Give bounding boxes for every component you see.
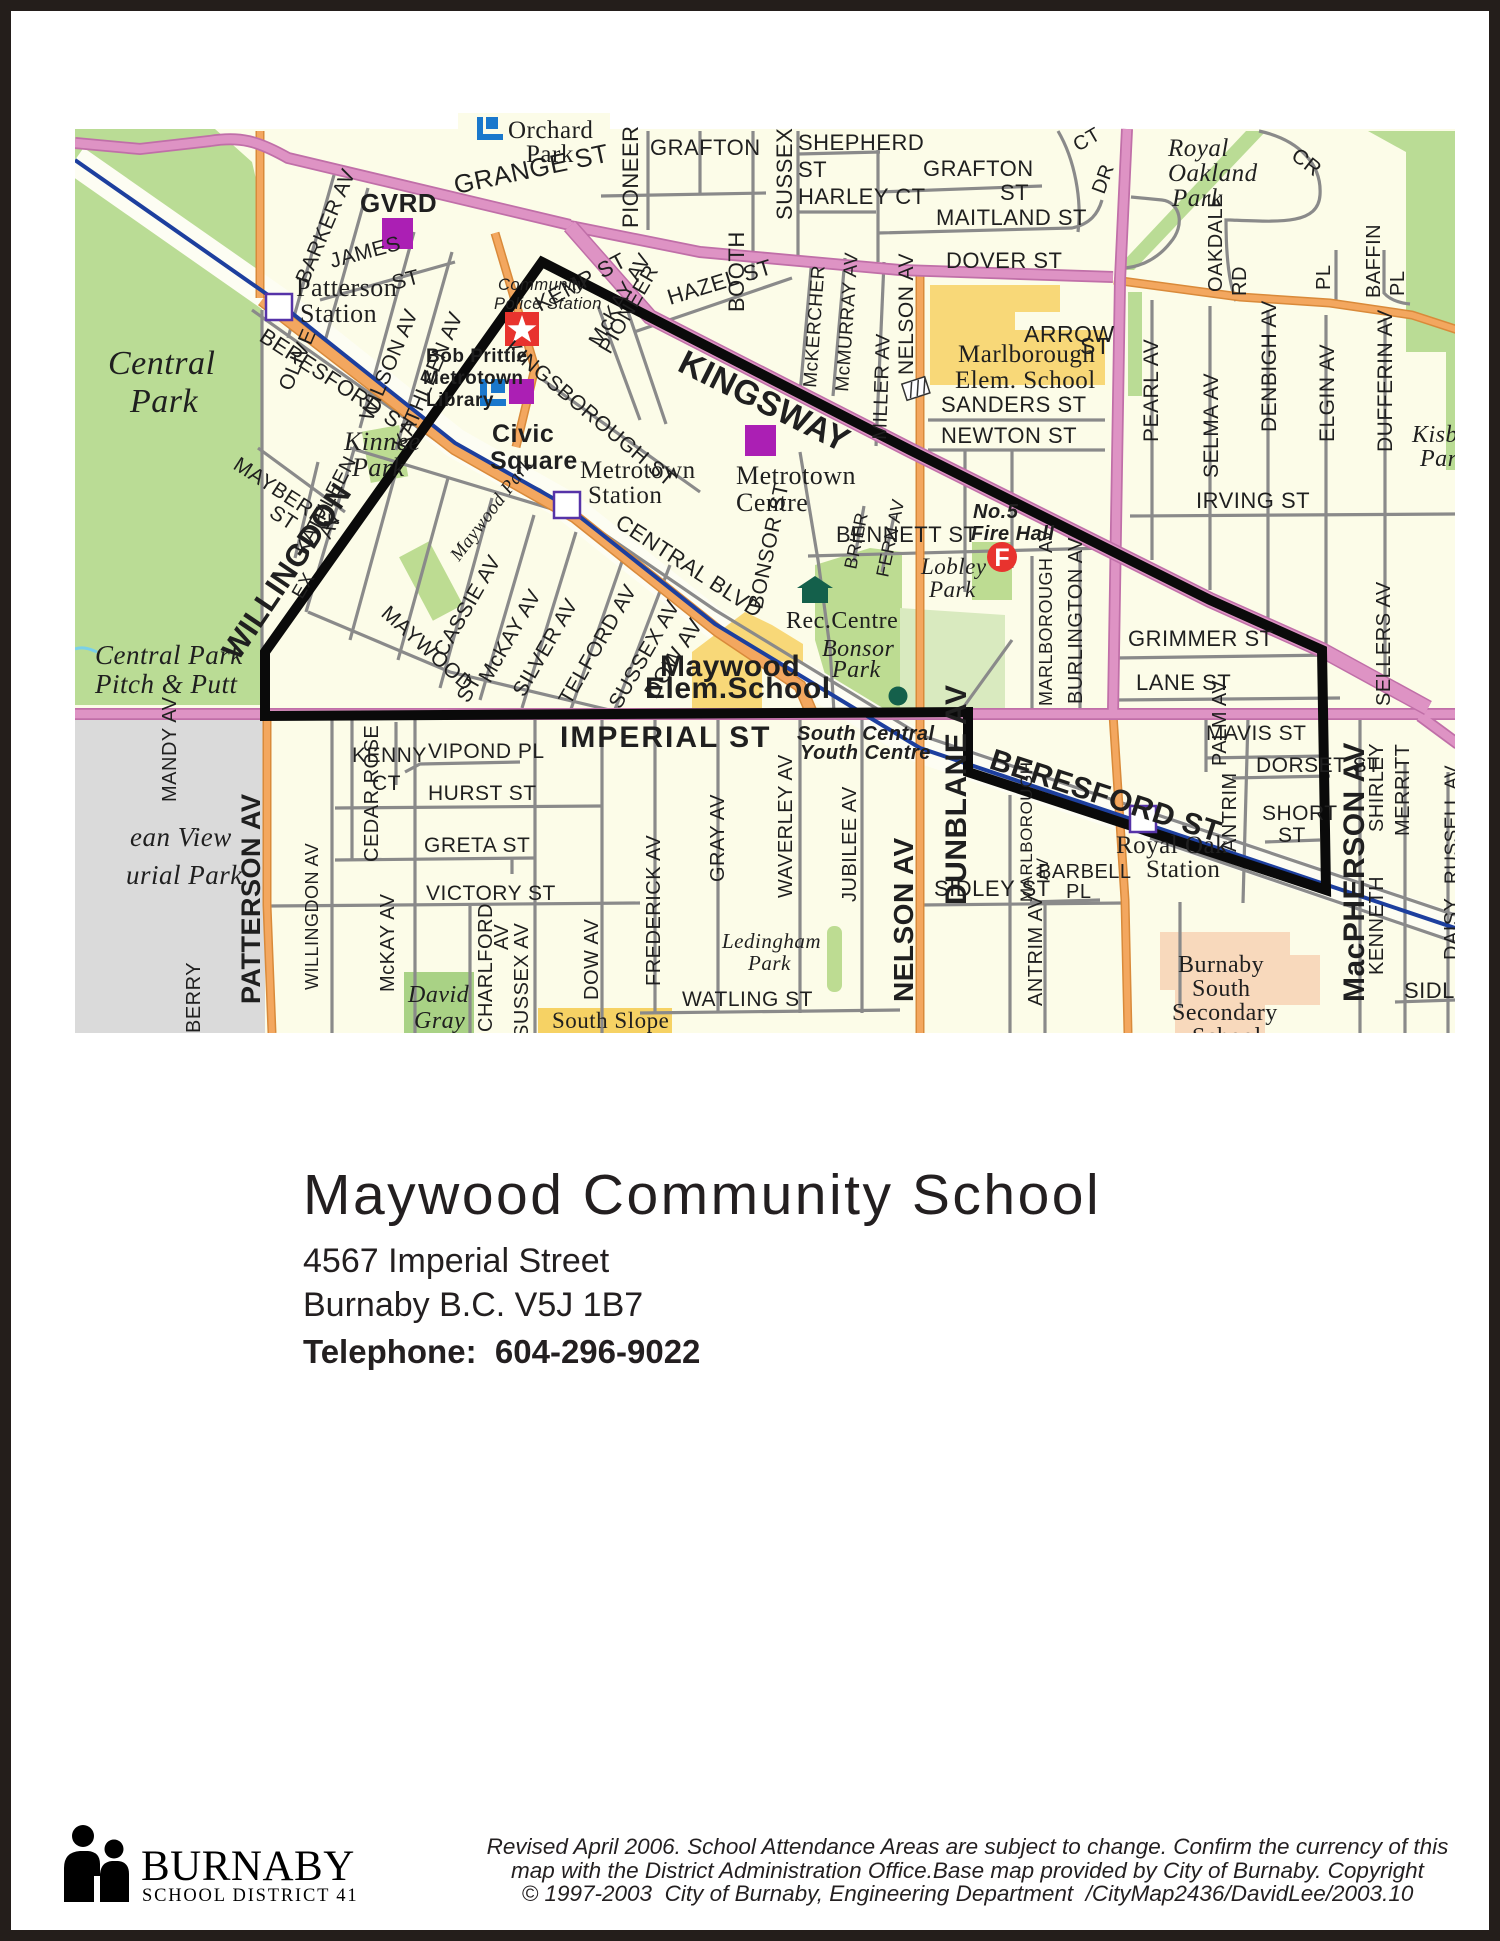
svg-text:Park: Park	[129, 383, 199, 420]
svg-text:ST: ST	[1000, 180, 1029, 205]
svg-text:AV: AV	[491, 924, 513, 950]
svg-text:MANDY AV: MANDY AV	[159, 696, 181, 802]
svg-text:PL: PL	[1387, 271, 1409, 296]
svg-text:SHEPHERD: SHEPHERD	[798, 130, 924, 155]
svg-text:Oakland: Oakland	[1168, 160, 1258, 187]
svg-text:Metrotown: Metrotown	[423, 368, 524, 389]
svg-text:PL: PL	[1066, 881, 1091, 903]
svg-text:AV: AV	[1033, 857, 1052, 880]
svg-text:ean View: ean View	[130, 822, 232, 852]
svg-text:Station: Station	[300, 299, 377, 328]
svg-text:SELMA AV: SELMA AV	[1200, 373, 1223, 478]
svg-text:Marlborough: Marlborough	[958, 341, 1095, 368]
svg-text:GRAY AV: GRAY AV	[707, 794, 729, 882]
svg-text:GVRD: GVRD	[360, 188, 437, 218]
svg-text:MERRITT: MERRITT	[1392, 744, 1414, 836]
svg-text:RD: RD	[1229, 266, 1251, 296]
svg-text:WAVERLEY AV: WAVERLEY AV	[775, 754, 797, 898]
svg-text:BENNETT ST: BENNETT ST	[836, 522, 978, 547]
svg-text:PATTERSON AV: PATTERSON AV	[236, 793, 266, 1004]
svg-text:Park: Park	[526, 141, 574, 168]
svg-text:CHARLFORD: CHARLFORD	[475, 903, 497, 1032]
svg-text:Station: Station	[1146, 856, 1220, 883]
svg-text:Park: Park	[351, 453, 405, 482]
svg-text:IMPERIAL ST: IMPERIAL ST	[560, 721, 771, 754]
svg-text:MARLBOROUGH AV: MARLBOROUGH AV	[1036, 529, 1056, 706]
svg-text:urial Park: urial Park	[126, 860, 243, 890]
svg-text:DUNBLANE AV: DUNBLANE AV	[940, 685, 973, 906]
svg-text:BURNABY: BURNABY	[141, 1843, 355, 1890]
svg-text:Park: Park	[1171, 185, 1223, 212]
svg-text:WATLING ST: WATLING ST	[682, 988, 813, 1011]
svg-text:GRETA ST: GRETA ST	[424, 834, 530, 857]
svg-text:Gray: Gray	[414, 1008, 465, 1033]
svg-text:DOVER ST: DOVER ST	[946, 248, 1062, 273]
svg-text:Library: Library	[426, 390, 494, 411]
svg-text:Station: Station	[588, 482, 662, 509]
svg-text:Metrotown: Metrotown	[736, 461, 856, 490]
svg-text:Rec.Centre: Rec.Centre	[786, 608, 898, 634]
svg-text:ST: ST	[1278, 824, 1306, 847]
svg-text:PIONEER: PIONEER	[618, 125, 643, 228]
svg-text:PL: PL	[1313, 265, 1335, 290]
svg-text:ANTRIM AV: ANTRIM AV	[1025, 895, 1047, 1006]
svg-text:FREDERICK AV: FREDERICK AV	[643, 835, 665, 986]
svg-text:Patterson: Patterson	[296, 273, 397, 302]
svg-text:DORSET ST: DORSET ST	[1256, 754, 1380, 777]
svg-text:Youth Centre: Youth Centre	[800, 742, 931, 764]
svg-text:David: David	[407, 982, 470, 1008]
svg-text:McKAY AV: McKAY AV	[377, 893, 399, 992]
svg-text:CEDAR ROSE: CEDAR ROSE	[361, 725, 383, 862]
svg-text:Park: Park	[747, 951, 791, 975]
svg-text:GRAFTON: GRAFTON	[923, 156, 1034, 181]
svg-text:Kisbe: Kisbe	[1411, 422, 1455, 448]
svg-text:NELSON AV: NELSON AV	[895, 253, 918, 375]
svg-text:Park: Park	[928, 577, 976, 602]
svg-text:Ledingham: Ledingham	[721, 929, 821, 953]
svg-text:DOW AV: DOW AV	[581, 918, 603, 1000]
svg-text:SANDERS ST: SANDERS ST	[941, 392, 1087, 417]
svg-text:ANTRIM: ANTRIM	[1219, 772, 1241, 852]
svg-text:VIPOND PL: VIPOND PL	[428, 740, 545, 763]
svg-text:Pitch & Putt: Pitch & Putt	[94, 669, 238, 699]
svg-text:Royal: Royal	[1167, 135, 1229, 162]
svg-text:Royal Oak: Royal Oak	[1116, 832, 1228, 859]
svg-text:Park: Park	[1419, 446, 1455, 472]
svg-text:SUSSEX AV: SUSSEX AV	[511, 923, 533, 1033]
svg-text:HARLEY CT: HARLEY CT	[798, 184, 926, 209]
svg-text:SHORT: SHORT	[1262, 802, 1338, 825]
svg-text:No.5: No.5	[973, 501, 1019, 523]
svg-text:BARBELL: BARBELL	[1038, 861, 1132, 883]
svg-text:Kinnee: Kinnee	[343, 427, 421, 456]
svg-text:Metrotown: Metrotown	[580, 457, 696, 484]
svg-text:KENNETH: KENNETH	[1366, 876, 1388, 975]
svg-text:Central Park: Central Park	[95, 640, 243, 670]
svg-text:South: South	[1192, 976, 1251, 1002]
svg-text:VICTORY ST: VICTORY ST	[426, 882, 556, 905]
svg-text:MILLER AV: MILLER AV	[869, 333, 895, 440]
svg-text:BERRY: BERRY	[183, 962, 205, 1033]
svg-text:GRIMMER ST: GRIMMER ST	[1128, 626, 1274, 651]
svg-text:ST: ST	[798, 157, 827, 182]
svg-text:Elem. School: Elem. School	[955, 367, 1096, 394]
svg-text:DAISY: DAISY	[1441, 897, 1455, 960]
svg-text:GRAFTON: GRAFTON	[650, 135, 761, 160]
svg-text:SELLERS AV: SELLERS AV	[1373, 581, 1395, 706]
svg-text:MAITLAND ST: MAITLAND ST	[936, 205, 1087, 230]
svg-text:IRVING ST: IRVING ST	[1196, 488, 1310, 513]
svg-text:ELGIN AV: ELGIN AV	[1316, 344, 1339, 442]
svg-text:SIDLEY: SIDLEY	[1404, 978, 1455, 1003]
svg-text:JUBILEE AV: JUBILEE AV	[839, 786, 861, 902]
svg-text:PALM AV: PALM AV	[1209, 680, 1231, 766]
svg-text:South Slope: South Slope	[552, 1008, 669, 1033]
svg-text:WILLINGDON AV: WILLINGDON AV	[302, 843, 322, 990]
svg-text:BAFFIN: BAFFIN	[1363, 224, 1385, 298]
svg-text:HURST ST: HURST ST	[428, 782, 537, 805]
svg-text:BURLINGTON AV: BURLINGTON AV	[1065, 537, 1087, 704]
svg-text:PEARL AV: PEARL AV	[1140, 339, 1163, 442]
svg-text:Burnaby: Burnaby	[1178, 952, 1264, 978]
svg-text:Central: Central	[108, 345, 215, 382]
svg-text:DENBIGH AV: DENBIGH AV	[1258, 300, 1281, 432]
svg-text:Elem.School: Elem.School	[645, 672, 831, 705]
svg-text:SUSSEX: SUSSEX	[772, 128, 797, 220]
svg-text:SCHOOL DISTRICT 41: SCHOOL DISTRICT 41	[142, 1886, 358, 1906]
svg-text:Lobley: Lobley	[920, 554, 987, 579]
svg-text:Community: Community	[498, 276, 587, 294]
svg-text:F: F	[994, 544, 1009, 572]
svg-text:RUSSELL AV: RUSSELL AV	[1442, 765, 1455, 884]
svg-text:School: School	[1192, 1024, 1262, 1033]
svg-text:Orchard: Orchard	[508, 117, 593, 144]
svg-text:NEWTON ST: NEWTON ST	[941, 423, 1077, 448]
svg-text:NELSON AV: NELSON AV	[888, 837, 919, 1002]
svg-text:Civic: Civic	[492, 420, 554, 448]
svg-text:DUFFERIN AV: DUFFERIN AV	[1374, 309, 1397, 452]
svg-text:Bob Prittie: Bob Prittie	[426, 346, 528, 367]
svg-text:SHIRLEY: SHIRLEY	[1366, 743, 1388, 832]
svg-text:Park: Park	[831, 657, 881, 683]
svg-text:Secondary: Secondary	[1172, 1000, 1278, 1026]
svg-text:Police Station: Police Station	[494, 295, 602, 313]
